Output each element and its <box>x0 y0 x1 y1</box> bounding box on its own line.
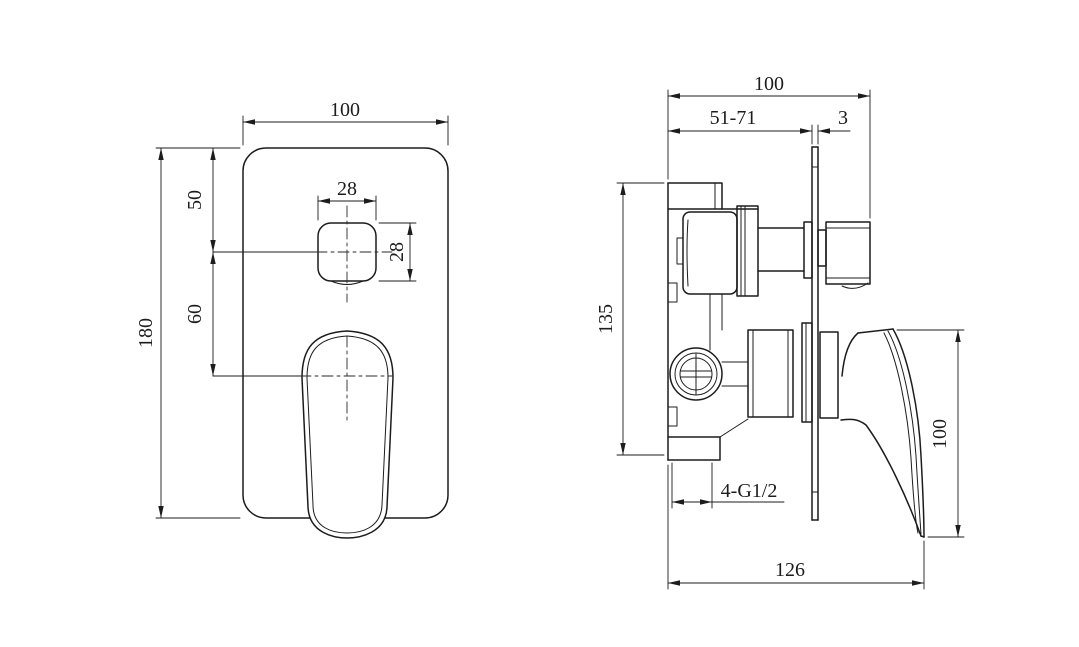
dimension-plate-width: 100 <box>243 99 448 145</box>
top-inlet-pipe <box>668 183 722 209</box>
dim-plate-height-label: 180 <box>135 318 157 348</box>
dim-handle-spacing-label: 60 <box>184 304 206 324</box>
dimension-thread-callout: 4-G1/2 <box>672 463 784 508</box>
dimension-install-depth: 51-71 <box>668 107 812 144</box>
handle-front <box>302 331 393 538</box>
front-view: 100 180 50 60 28 <box>135 99 448 538</box>
dim-button-width-label: 28 <box>337 178 357 200</box>
technical-drawing: 100 180 50 60 28 <box>0 0 1079 647</box>
dimension-handle-spacing: 60 <box>184 252 300 376</box>
drawing-sheet: 100 180 50 60 28 <box>0 0 1079 647</box>
dim-button-height-label: 28 <box>386 242 408 262</box>
dim-button-offset-label: 50 <box>184 190 206 210</box>
side-port <box>670 348 722 400</box>
diverter-housing <box>683 212 737 294</box>
dimension-button-offset: 50 <box>184 148 316 252</box>
dim-install-depth-label: 51-71 <box>710 107 757 129</box>
dim-thread-callout-label: 4-G1/2 <box>721 480 778 502</box>
side-view: 135 100 51-71 3 4-G1/2 <box>595 73 964 589</box>
mounting-bracket-lower <box>668 407 677 426</box>
dimension-overall-length: 126 <box>668 465 924 589</box>
dim-body-height-label: 135 <box>595 304 617 334</box>
dimension-overall-depth: 100 <box>668 73 870 218</box>
dimension-handle-length: 100 <box>897 330 964 537</box>
diverter-button-side <box>818 222 870 288</box>
dimension-body-height: 135 <box>595 183 664 455</box>
valve-body-side <box>668 183 812 460</box>
handle-side <box>820 329 924 537</box>
handle-hub <box>820 332 838 418</box>
dim-plate-width-label: 100 <box>330 99 360 121</box>
bottom-inlet <box>668 437 720 460</box>
dim-overall-depth-label: 100 <box>754 73 784 95</box>
dim-overall-length-label: 126 <box>775 559 805 581</box>
dim-plate-thickness-label: 3 <box>838 107 848 129</box>
mounting-bracket-upper <box>668 283 677 302</box>
dimension-plate-thickness: 3 <box>818 107 850 144</box>
cartridge-cylinder <box>748 330 793 417</box>
dim-handle-length-label: 100 <box>929 419 951 449</box>
wall-plate-side <box>812 147 818 520</box>
